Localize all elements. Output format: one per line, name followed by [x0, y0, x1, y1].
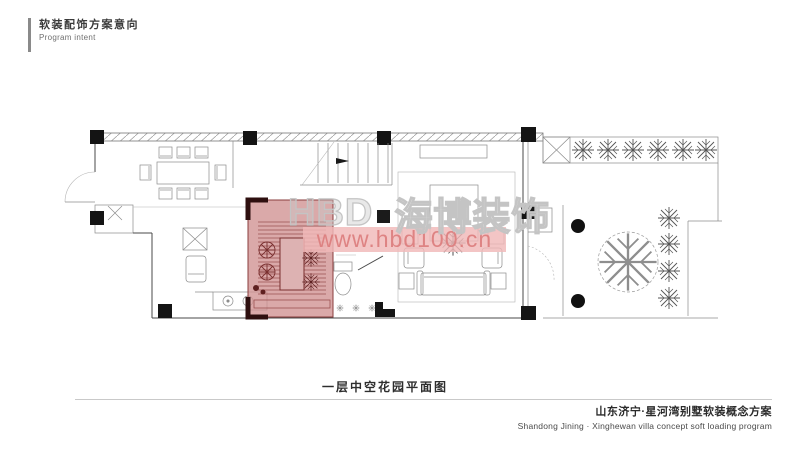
garden-column	[571, 219, 585, 233]
dining-table-set	[140, 147, 226, 199]
project-title-cn: 山东济宁·星河湾别墅软装概念方案	[518, 403, 772, 419]
plant-tree-icon	[302, 273, 320, 291]
staircase	[300, 142, 392, 185]
watermark-brand-cn: 海博装饰	[394, 186, 550, 241]
plan-caption: 一层中空花园平面图	[85, 378, 685, 395]
watermark-brand-latin: HBD	[288, 192, 373, 235]
presentation-slide: 软装配饰方案意向 Program intent	[0, 0, 800, 450]
plant-fan-icon	[259, 264, 275, 280]
project-title-en: Shandong Jining · Xinghewan villa concep…	[518, 421, 772, 431]
outdoor-garden	[528, 137, 722, 318]
brand-square-logo-icon	[377, 210, 390, 223]
large-tree-icon	[598, 232, 658, 292]
watermark-brand: HBD 海博装饰	[288, 186, 550, 241]
footer-divider	[75, 399, 772, 400]
footer-project-block: 山东济宁·星河湾别墅软装概念方案 Shandong Jining · Xingh…	[518, 403, 772, 431]
stair-direction-arrow	[336, 158, 349, 164]
plant-fan-icon	[259, 242, 275, 258]
garden-column	[571, 294, 585, 308]
